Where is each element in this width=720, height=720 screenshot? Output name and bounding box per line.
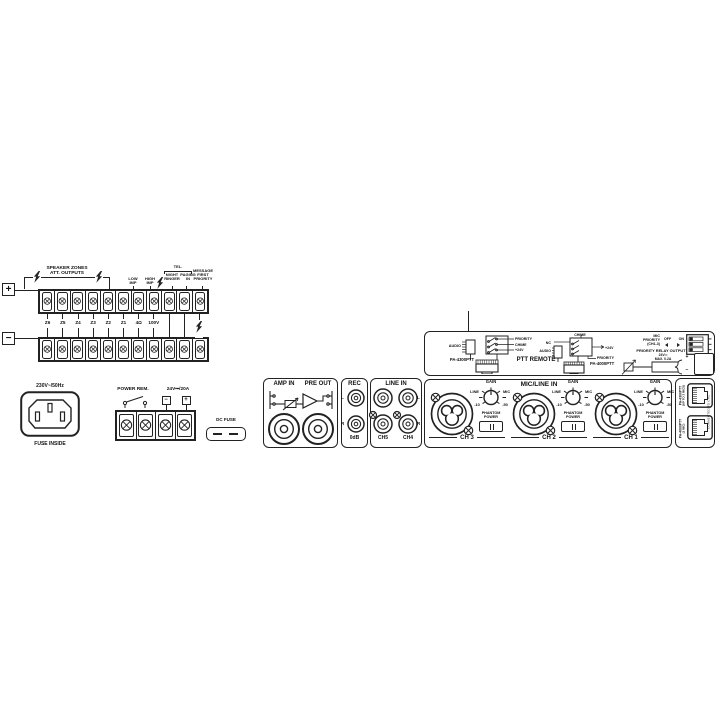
fuse-slot: [213, 433, 222, 436]
terminal-plate: [42, 340, 53, 359]
lightning-icon: [33, 270, 41, 288]
terminal-strip-plus: [38, 289, 209, 314]
phantom-power-switch: [561, 421, 585, 432]
ptt-right-nc-label: NC: [540, 341, 551, 345]
minus-terminal-box: −: [2, 332, 15, 345]
terminal-plate: [195, 340, 206, 359]
gain-max-label: -50: [662, 403, 676, 407]
screw-icon: [119, 295, 128, 307]
lightning-icon: [33, 271, 41, 283]
screw-icon: [150, 343, 159, 355]
terminal: [115, 339, 130, 360]
fuse-slot: [229, 433, 238, 436]
minus-wire: [15, 338, 38, 340]
message-priority-label: MESSAGE FIRST PRIORITY: [190, 269, 216, 282]
ptt-left-model-label: PA-4300PTT: [441, 358, 474, 363]
ptt-right-model-label: PA-4000PTT: [590, 362, 620, 367]
terminal-plate: [179, 292, 190, 311]
phantom-power-label: PHANTOM POWER: [558, 411, 588, 419]
terminal-plate: [195, 292, 206, 311]
screw-icon: [134, 343, 143, 355]
plus-wire: [15, 290, 38, 292]
phone-jack-icon: [267, 412, 301, 446]
rj45-side-label: CONNECTED TO CH1: [707, 383, 713, 442]
on-arrow-icon: [677, 343, 680, 347]
terminal-plate: [164, 292, 175, 311]
terminal-wire: [78, 314, 79, 319]
tel-label: TEL.: [168, 265, 188, 269]
terminal: [176, 291, 191, 312]
ptt-wiring-icon: [552, 334, 604, 374]
dc-plus-box: +: [182, 396, 191, 405]
screw-icon: [73, 343, 82, 355]
terminal: [192, 291, 207, 312]
power-terminal-block: [115, 410, 196, 441]
screw-icon: [165, 295, 174, 307]
terminal-wire: [62, 328, 63, 338]
panel-top-tick: [468, 311, 469, 332]
insert-schematic-icon: [267, 389, 335, 411]
gain-min-label: -10: [634, 403, 648, 407]
dc-minus-box: −: [162, 396, 171, 405]
phantom-power-switch: [643, 421, 667, 432]
gain-label: GAIN: [476, 380, 506, 385]
rj45-bottom-label: PA-4000PTT (1 MIC): [678, 411, 687, 447]
rec-level-label: 0dB: [341, 436, 368, 442]
screw-icon: [165, 343, 174, 355]
terminal-wire: [153, 314, 154, 319]
terminal-plate: [57, 292, 68, 311]
screw-icon: [196, 343, 205, 355]
screw-icon: [89, 295, 98, 307]
terminal: [40, 339, 54, 360]
power-rem-label: POWER REM.: [110, 387, 156, 392]
terminal-plate: [88, 292, 99, 311]
terminal: [70, 291, 85, 312]
terminal-plate: [118, 292, 129, 311]
lightning-icon: [95, 270, 103, 288]
gain-line-label: LINE: [465, 390, 479, 394]
channel-label-row: CH 2: [511, 434, 587, 442]
ptt-left-24v-label: +24V: [515, 348, 535, 352]
signal-wire: [184, 314, 185, 337]
terminal: [192, 339, 207, 360]
terminal: [40, 291, 54, 312]
screw-icon: [196, 295, 205, 307]
mic-priority-label: MIC PRIORITY (CH1-3): [633, 334, 660, 346]
terminal-plate: [133, 340, 144, 359]
screw-icon: [180, 295, 189, 307]
screw-icon: [159, 418, 172, 432]
phantom-power-switch: [479, 421, 503, 432]
terminal-wire: [93, 314, 94, 319]
terminal-wire: [93, 328, 94, 338]
relay-minus-label: −: [686, 368, 694, 374]
screw-icon: [43, 343, 52, 355]
channel-line: [593, 437, 621, 438]
ptt-left-audio-label: AUDIO: [444, 344, 461, 348]
screw-icon: [134, 295, 143, 307]
power-rem-switch-icon: [121, 395, 149, 408]
screw-icon: [73, 295, 82, 307]
terminal: [100, 339, 115, 360]
channel-line: [641, 437, 669, 438]
terminal: [131, 339, 146, 360]
channel-line: [511, 437, 539, 438]
terminal-wire: [138, 314, 139, 319]
lightning-icon: [195, 321, 203, 333]
dc-fuse-holder: [206, 427, 246, 441]
rec-label: REC: [341, 381, 368, 388]
terminal-plate: [149, 292, 160, 311]
screw-icon: [180, 343, 189, 355]
gain-mic-label: MIC: [667, 390, 681, 394]
terminal: [85, 291, 100, 312]
terminal: [54, 291, 69, 312]
gain-label: GAIN: [558, 380, 588, 385]
ptt-left-priority-label: PRIORITY: [515, 337, 535, 341]
power-terminal: [117, 412, 136, 439]
mains-inlet-icon: [20, 391, 80, 437]
mains-voltage-label: 230V~/50Hz: [18, 384, 82, 390]
dc-fuse-label: DC FUSE: [204, 417, 248, 422]
terminal: [146, 339, 161, 360]
terminal-plate: [179, 340, 190, 359]
terminal-plate: [149, 340, 160, 359]
phone-jack-icon: [301, 412, 335, 446]
terminal-wire: [62, 314, 63, 319]
off-label: OFF: [664, 337, 671, 341]
channel-label: CH 1: [624, 435, 638, 441]
terminal-plate: [72, 340, 83, 359]
terminal-wire: [47, 328, 48, 338]
power-terminal: [155, 412, 175, 439]
screw-icon: [89, 343, 98, 355]
terminal-plate: [119, 414, 134, 437]
screw-icon: [392, 410, 402, 420]
terminal: [176, 339, 191, 360]
line-l-label: L: [417, 395, 423, 400]
terminal-wire: [123, 328, 124, 338]
channel-line: [559, 437, 587, 438]
terminal-plate: [57, 340, 68, 359]
screw-icon: [150, 295, 159, 307]
relay-terminal-block: [694, 353, 714, 375]
channel-line: [477, 437, 505, 438]
zone-label: 100V: [144, 320, 164, 325]
screw-icon: [119, 343, 128, 355]
channel-line: [429, 437, 457, 438]
gain-line-label: LINE: [547, 390, 561, 394]
off-on-labels: OFFON: [662, 337, 686, 341]
channel-label: CH 3: [460, 435, 474, 441]
terminal-plate: [133, 292, 144, 311]
screw-icon: [104, 295, 113, 307]
panel-screw: [368, 407, 378, 425]
terminal-wire: [153, 328, 154, 338]
terminal: [146, 291, 161, 312]
fuse-inside-label: FUSE INSIDE: [18, 442, 82, 448]
rca-jack-icon: [346, 414, 366, 434]
terminal: [161, 291, 176, 312]
ch5-label: CH5: [373, 436, 393, 442]
rj45-bottom-sub: (1 MIC): [682, 424, 686, 434]
terminal-plate: [103, 292, 114, 311]
terminal-wire: [123, 314, 124, 319]
signal-wire: [169, 314, 170, 337]
rear-panel-diagram: + − SPEAKER ZONES ATT. OUTPUTS LOW IMP H…: [0, 0, 720, 720]
screw-icon: [58, 295, 67, 307]
terminal-plate: [138, 414, 153, 437]
ptt-right-audio-label: AUDIO: [534, 349, 551, 353]
terminal-plate: [118, 340, 129, 359]
terminal-strip-minus: [38, 337, 209, 362]
ptt-left-chime-label: CHIME: [515, 343, 535, 347]
gain-min-label: -10: [470, 403, 484, 407]
relay-schematic-icon: [622, 358, 690, 376]
terminal-plate: [177, 414, 192, 437]
terminal-plate: [72, 292, 83, 311]
ptt-right-priority-label: PRIORITY: [597, 356, 619, 360]
screw-icon: [139, 418, 152, 432]
screw-icon: [58, 343, 67, 355]
terminal-wire: [78, 328, 79, 338]
terminal-plate: [103, 340, 114, 359]
screw-icon: [368, 410, 378, 420]
relay-plus-label: +: [686, 355, 694, 361]
zones-bracket-left: [24, 277, 25, 289]
ch4-label: CH4: [398, 436, 418, 442]
terminal-plate: [42, 292, 53, 311]
panel-screw: [392, 407, 402, 425]
plus-terminal-box: +: [2, 283, 15, 296]
phantom-power-label: PHANTOM POWER: [476, 411, 506, 419]
mains-inlet: [20, 391, 80, 442]
gain-label: GAIN: [640, 380, 670, 385]
channel-label-row: CH 3: [429, 434, 505, 442]
pre-out-label: PRE OUT: [298, 381, 338, 388]
line-r-label: R: [417, 421, 423, 426]
ptt-right-24v-label: +24V: [605, 346, 623, 350]
pre-out-jack: [301, 412, 335, 451]
terminal-wire: [138, 328, 139, 338]
rj45-top-sub: (UP TO 3 MICS): [682, 385, 686, 406]
terminal-plate: [88, 340, 99, 359]
screw-icon: [120, 418, 133, 432]
ptt-wiring-icon: [462, 334, 514, 374]
screw-icon: [104, 343, 113, 355]
screw-icon: [43, 295, 52, 307]
screw-icon: [178, 418, 191, 432]
terminal: [54, 339, 69, 360]
on-label: ON: [679, 337, 684, 341]
rj45-top-label: PA-4300PTT (UP TO 3 MICS): [678, 378, 687, 414]
speaker-zones-label: SPEAKER ZONES ATT. OUTPUTS: [42, 266, 92, 277]
dc-input-label: 24V⎓/20A: [155, 387, 201, 392]
terminal: [100, 291, 115, 312]
terminal: [70, 339, 85, 360]
amp-in-jack: [267, 412, 301, 451]
channel-label: CH 2: [542, 435, 556, 441]
terminal-plate: [164, 340, 175, 359]
terminal: [161, 339, 176, 360]
terminal: [115, 291, 130, 312]
power-terminal: [136, 412, 156, 439]
zones-bracket-right: [109, 277, 110, 289]
terminal-wire: [47, 314, 48, 319]
terminal: [85, 339, 100, 360]
phantom-power-label: PHANTOM POWER: [640, 411, 670, 419]
terminal-wire: [108, 314, 109, 319]
lightning-icon: [95, 271, 103, 283]
off-arrow-icon: [665, 343, 668, 347]
rca-jack-icon: [346, 388, 366, 408]
power-terminal: [175, 412, 195, 439]
rec-l-jack: [346, 388, 366, 413]
terminal: [131, 291, 146, 312]
terminal-plate: [158, 414, 173, 437]
terminal-wire: [108, 328, 109, 338]
gain-line-label: LINE: [629, 390, 643, 394]
gain-min-label: -10: [552, 403, 566, 407]
channel-label-row: CH 1: [593, 434, 669, 442]
lightning-icon: [195, 320, 203, 338]
